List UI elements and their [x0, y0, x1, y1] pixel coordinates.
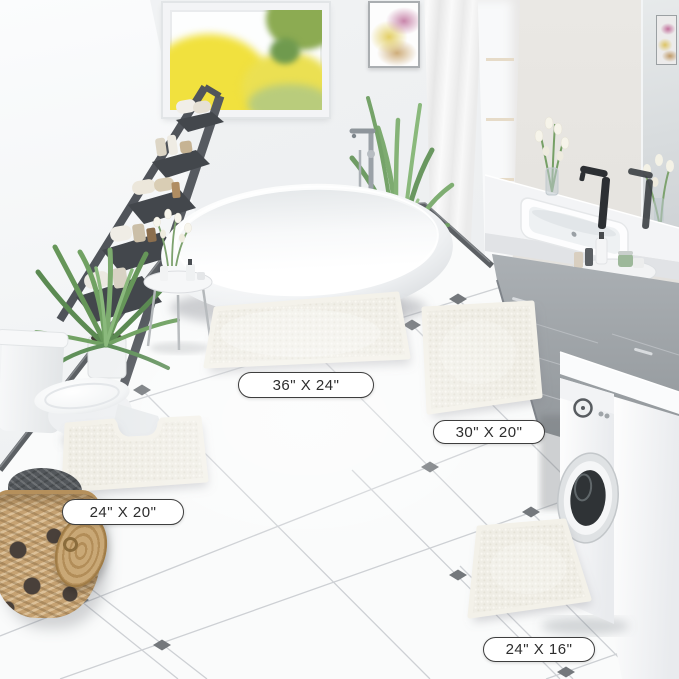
bathroom-product-photo: 36" X 24" 30" X 20" 24" X 20" 24" X 16" [0, 0, 679, 679]
room-scene-graphics [0, 0, 679, 679]
size-label-24x16: 24" X 16" [483, 637, 595, 662]
laundry-corner [540, 352, 679, 679]
laundry-cabinet [612, 396, 679, 679]
size-label-24x20-text: 24" X 20" [90, 505, 157, 520]
size-label-24x16-text: 24" X 16" [506, 642, 573, 657]
size-label-30x20-text: 30" X 20" [456, 425, 523, 440]
size-label-36x24: 36" X 24" [238, 372, 374, 398]
size-label-24x20: 24" X 20" [62, 499, 184, 525]
size-label-36x24-text: 36" X 24" [273, 378, 340, 393]
toilet-tank-lid [0, 329, 68, 348]
size-label-30x20: 30" X 20" [433, 420, 545, 444]
counter-flower-vase [535, 117, 569, 195]
